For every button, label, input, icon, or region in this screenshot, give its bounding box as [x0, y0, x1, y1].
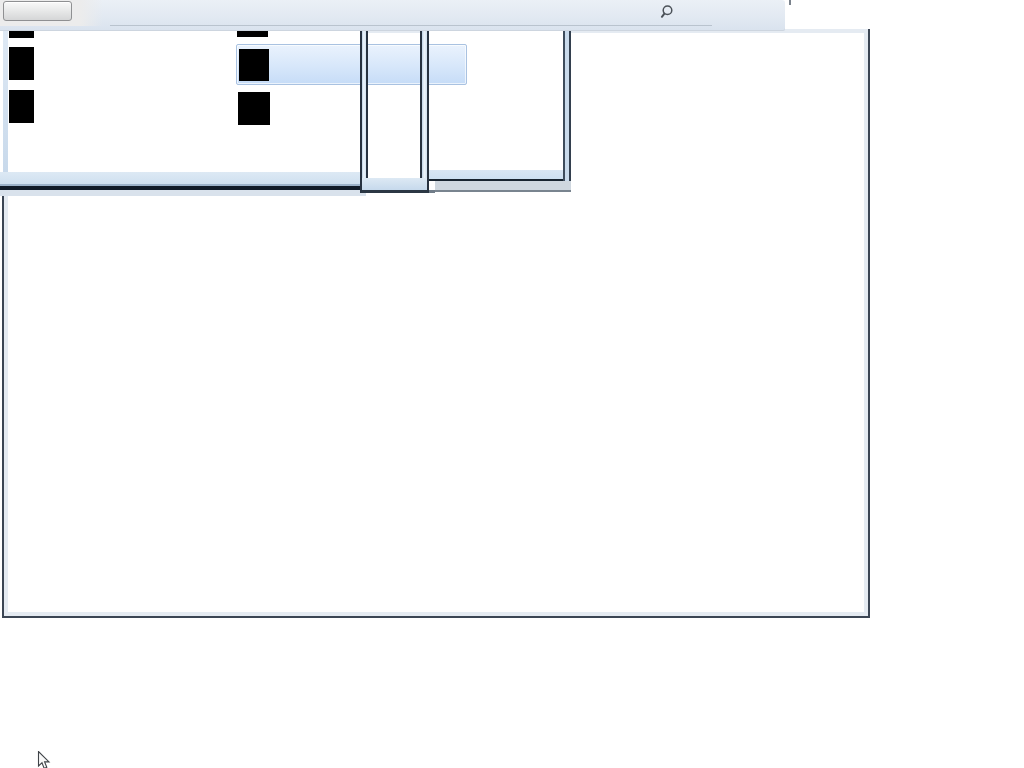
middle-menu-panel-right-edge	[420, 29, 429, 178]
right-menu-panel-bottom-edge	[429, 170, 571, 181]
middle-menu-panel-bottom-edge	[360, 178, 429, 193]
redacted-icon[interactable]	[9, 90, 34, 123]
left-menu-panel-bottom-edge	[0, 172, 361, 186]
mouse-cursor-icon	[37, 751, 51, 768]
toolbar-button[interactable]	[3, 1, 72, 21]
window-corner-mark	[789, 0, 791, 5]
right-menu-panel-shadow	[435, 181, 571, 192]
search-icon[interactable]	[657, 2, 677, 22]
redacted-icon[interactable]	[237, 31, 268, 37]
left-menu-panel-border	[0, 186, 364, 190]
redacted-icon[interactable]	[238, 92, 270, 125]
left-menu-panel-shadow	[0, 190, 366, 196]
search-field-underline	[110, 25, 712, 26]
redacted-icon[interactable]	[239, 49, 269, 81]
left-menu-panel-edge	[3, 29, 8, 172]
redacted-icon[interactable]	[9, 31, 34, 38]
middle-menu-panel-left-edge	[360, 29, 368, 178]
redacted-icon[interactable]	[9, 47, 34, 80]
right-menu-panel-edge	[563, 29, 571, 181]
selected-menu-item[interactable]	[236, 44, 467, 85]
